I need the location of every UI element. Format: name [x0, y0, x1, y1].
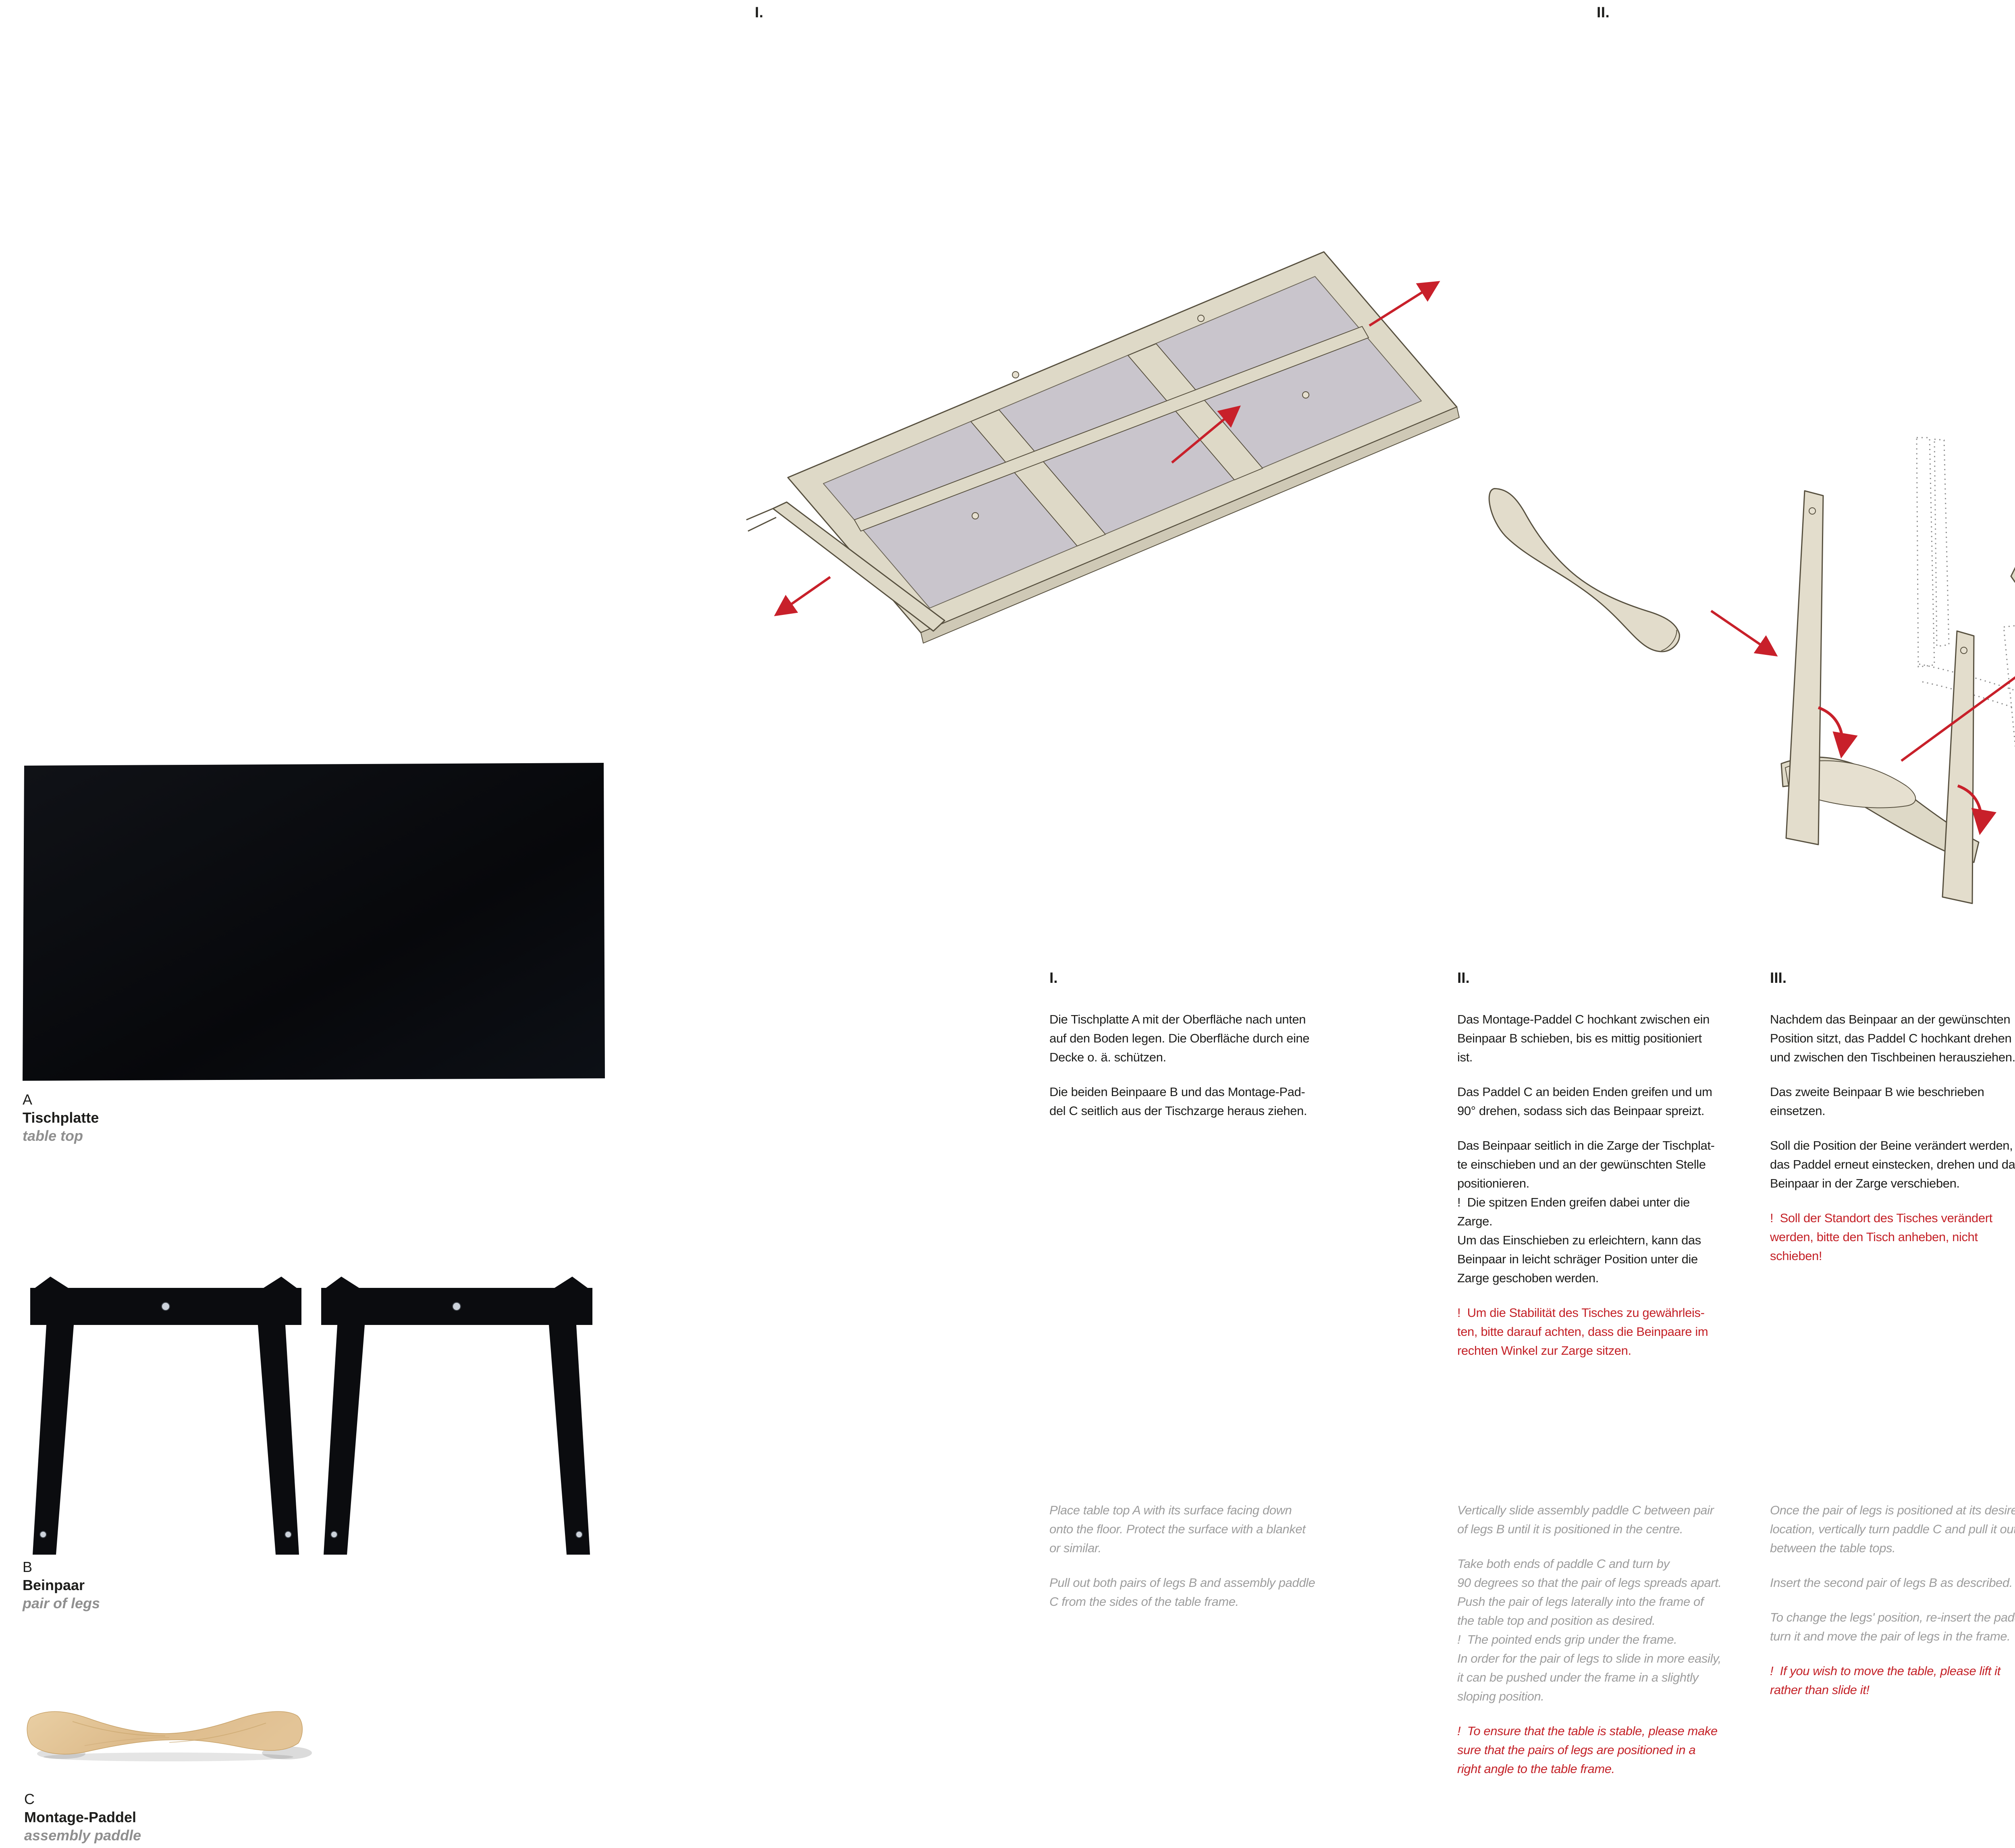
- photo-leg-pairs: [30, 1277, 592, 1555]
- step1-numeral: I.: [1049, 970, 1058, 986]
- component-a-letter: A: [23, 1090, 99, 1109]
- step2-en-warning: ! To ensure that the table is stable, pl…: [1457, 1721, 1722, 1778]
- step2-numeral: II.: [1457, 970, 1470, 986]
- component-c-name-de: Montage-Paddel: [24, 1808, 141, 1826]
- step2-en-paragraph-2: Take both ends of paddle C and turn by 9…: [1457, 1554, 1722, 1706]
- step3-de-paragraph-3: Soll die Position der Beine verändert we…: [1770, 1136, 2015, 1193]
- arrow-pull-paddle: [777, 577, 830, 614]
- arrow-rotate-left: [1818, 708, 1843, 754]
- component-c-letter: C: [24, 1790, 141, 1808]
- step1-en-paragraph-2: Pull out both pairs of legs B and assemb…: [1049, 1573, 1315, 1611]
- step2-en-paragraph-1: Vertically slide assembly paddle C betwe…: [1457, 1501, 1722, 1539]
- step1-en-paragraph-1: Place table top A with its surface facin…: [1049, 1501, 1315, 1557]
- step1-de-paragraph-1: Die Tischplatte A mit der Oberfläche nac…: [1049, 1010, 1309, 1067]
- component-label-b: B Beinpaar pair of legs: [23, 1558, 100, 1612]
- component-c-name-en: assembly paddle: [24, 1826, 141, 1844]
- step3-de-paragraph-2: Das zweite Beinpaar B wie beschrieben ei…: [1770, 1082, 2015, 1120]
- step3-numeral: III.: [1770, 970, 1786, 986]
- component-a-name-de: Tischplatte: [23, 1109, 99, 1127]
- component-b-letter: B: [23, 1558, 100, 1576]
- illustration-step3: [2004, 108, 2015, 805]
- component-b-name-en: pair of legs: [23, 1594, 100, 1612]
- arrow-insert-paddle: [1711, 611, 1775, 654]
- component-a-name-en: table top: [23, 1127, 99, 1145]
- step2-de-paragraph-3: Das Beinpaar seitlich in die Zarge der T…: [1457, 1136, 1715, 1287]
- illustration-step2: [1474, 438, 2015, 903]
- step3-en-paragraph-2: Insert the second pair of legs B as desc…: [1770, 1573, 2015, 1592]
- leg: [1942, 631, 1974, 903]
- component-label-a: A Tischplatte table top: [23, 1090, 99, 1145]
- step3-english-text: Once the pair of legs is positioned at i…: [1770, 1501, 2015, 1715]
- component-b-name-de: Beinpaar: [23, 1576, 100, 1594]
- step2-english-text: Vertically slide assembly paddle C betwe…: [1457, 1501, 1722, 1794]
- step3-de-warning: ! Soll der Standort des Tisches veränder…: [1770, 1208, 2015, 1265]
- step3-german-text: Nachdem das Beinpaar an der gewünschten …: [1770, 1010, 2015, 1281]
- step3-en-warning: ! If you wish to move the table, please …: [1770, 1661, 2015, 1699]
- component-label-c: C Montage-Paddel assembly paddle: [24, 1790, 141, 1844]
- leg-pair-photo: [321, 1277, 592, 1555]
- top-step-numeral-2: II.: [1597, 4, 1610, 21]
- step3-en-paragraph-3: To change the legs' position, re-insert …: [1770, 1608, 2015, 1646]
- ghost-leg-pair: [2004, 428, 2015, 805]
- top-step-numeral-1: I.: [755, 4, 764, 21]
- step2-german-text: Das Montage-Paddel C hochkant zwischen e…: [1457, 1010, 1715, 1376]
- leg-pair-photo: [30, 1277, 301, 1555]
- step2-de-warning: ! Um die Stabilität des Tisches zu gewäh…: [1457, 1303, 1715, 1360]
- step2-de-paragraph-2: Das Paddel C an beiden Enden greifen und…: [1457, 1082, 1715, 1120]
- step1-english-text: Place table top A with its surface facin…: [1049, 1501, 1315, 1627]
- assembly-instruction-page: I. II. III. I. Die Tischplatte A mit der…: [0, 0, 2015, 1848]
- assembly-paddle-drawing: [1474, 484, 1686, 660]
- photo-assembly-paddle: [27, 1711, 312, 1761]
- step1-german-text: Die Tischplatte A mit der Oberfläche nac…: [1049, 1010, 1309, 1136]
- step1-de-paragraph-2: Die beiden Beinpaare B und das Montage-P…: [1049, 1082, 1309, 1120]
- step3-de-paragraph-1: Nachdem das Beinpaar an der gewünschten …: [1770, 1010, 2015, 1067]
- step2-de-paragraph-1: Das Montage-Paddel C hochkant zwischen e…: [1457, 1010, 1715, 1067]
- arrow-pull-rail-1: [1369, 283, 1437, 326]
- step3-en-paragraph-1: Once the pair of legs is positioned at i…: [1770, 1501, 2015, 1557]
- illustration-step1: [746, 252, 1459, 643]
- photo-table-top: [23, 763, 605, 1081]
- leg: [1786, 491, 1823, 845]
